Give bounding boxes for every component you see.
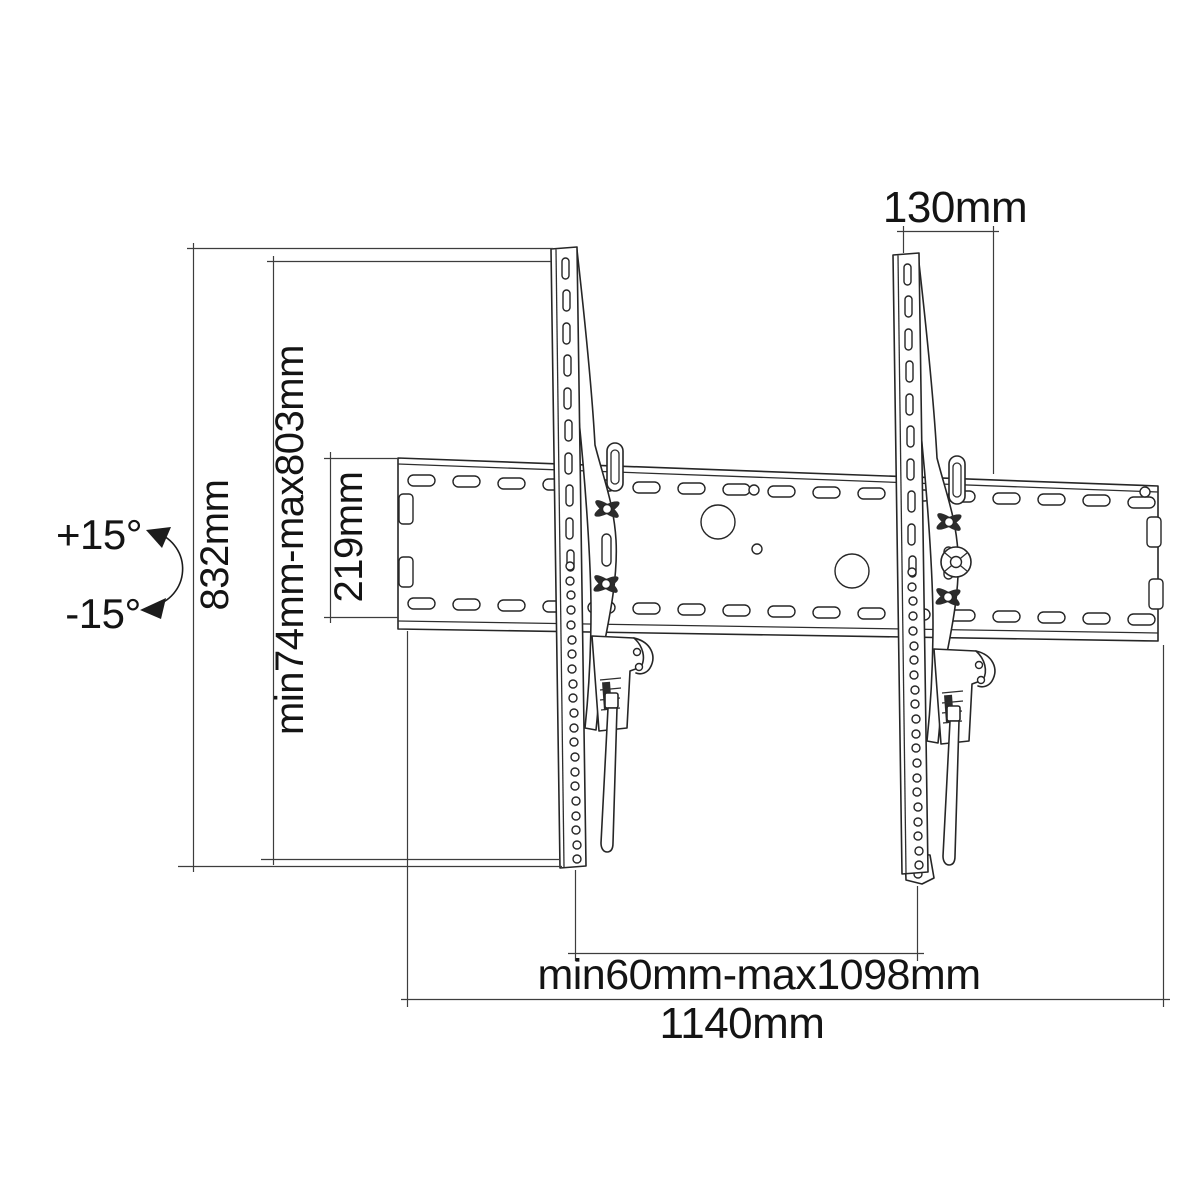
diagram-canvas: 832mm min74mm-max803mm 219mm 130mm min60… bbox=[0, 0, 1200, 1200]
tilt-angle-annotation: +15° -15° bbox=[56, 511, 183, 637]
wall-plate-end-tab bbox=[1147, 517, 1161, 547]
tilt-arc bbox=[153, 533, 183, 606]
label-bracket-height: 832mm bbox=[193, 480, 237, 611]
wall-plate-small-hole bbox=[752, 544, 762, 554]
dimension-219mm: 219mm bbox=[324, 452, 398, 623]
wall-plate-end-tab bbox=[399, 494, 413, 524]
label-tilt-up: +15° bbox=[56, 511, 142, 558]
tv-mount-dimension-diagram: 832mm min74mm-max803mm 219mm 130mm min60… bbox=[0, 0, 1200, 1200]
tilt-arrow-down-icon bbox=[140, 598, 166, 619]
wall-plate-end-tab bbox=[399, 557, 413, 587]
wall-plate-large-hole bbox=[835, 554, 869, 588]
label-bracket-top-offset: 130mm bbox=[883, 183, 1027, 232]
wall-plate-small-hole bbox=[749, 485, 759, 495]
wall-plate-end-tab bbox=[1149, 579, 1163, 609]
label-bracket-spacing-range: min60mm-max1098mm bbox=[537, 951, 980, 999]
dimension-min60-max1098: min60mm-max1098mm bbox=[537, 870, 980, 999]
label-wall-plate-height: 219mm bbox=[327, 472, 371, 603]
wall-plate-small-hole bbox=[1140, 487, 1150, 497]
label-vertical-adjust-range: min74mm-max803mm bbox=[268, 345, 312, 735]
wall-plate-large-hole bbox=[701, 505, 735, 539]
label-total-width: 1140mm bbox=[660, 999, 825, 1048]
label-tilt-down: -15° bbox=[65, 590, 141, 637]
wall-plate bbox=[398, 458, 1163, 641]
